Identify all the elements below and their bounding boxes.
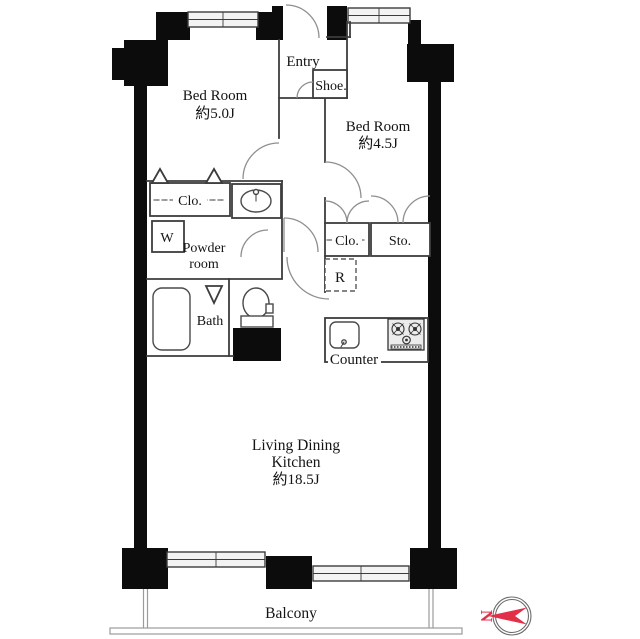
closet-right-door-arc <box>347 201 369 223</box>
door-arc-shoe <box>297 82 313 98</box>
entry-label: Entry <box>286 54 320 70</box>
door-arc-front-door <box>286 5 319 38</box>
powder-room: W Powder room <box>152 221 268 272</box>
wall-left <box>134 84 147 552</box>
wall-top-left-band <box>156 12 190 40</box>
closet-left-label: Clo. <box>178 194 202 209</box>
storage-door-arc <box>403 196 430 223</box>
bathtub-icon <box>153 288 190 350</box>
bedroom1-size: 約5.0J <box>195 105 235 122</box>
hall-doors <box>284 218 329 299</box>
closet-right-and-storage: Clo. Sto. <box>325 196 430 256</box>
bedroom1-label: Bed Room <box>183 88 248 104</box>
wash-basin <box>232 184 281 218</box>
bedroom2-label: Bed Room <box>346 119 411 135</box>
toilet-tank-icon <box>241 316 273 327</box>
pillar-bottom-right <box>410 548 457 589</box>
bath-folding-door-icon <box>206 286 222 303</box>
door-arc-bedroom2 <box>325 162 361 198</box>
folding-door-icon <box>152 169 168 183</box>
wall-entry-right <box>327 6 347 40</box>
pillar-bottom-left <box>122 548 168 589</box>
counter-label: Counter <box>330 352 378 368</box>
wall-right <box>428 80 441 552</box>
balcony-slab <box>110 628 462 634</box>
compass: N <box>477 597 531 635</box>
north-label: N <box>477 610 496 623</box>
balcony: Balcony <box>110 589 462 634</box>
floor-plan-page: Clo. W Powder room Bath Entry Shoe. <box>0 0 640 639</box>
wall-entry-left <box>272 6 283 40</box>
kitchen-counter: Counter <box>325 318 428 368</box>
closet-right-label: Clo. <box>335 234 359 249</box>
pillar-top-left <box>124 40 168 86</box>
pillar-top-right <box>407 44 454 82</box>
toilet-bowl-icon <box>243 288 269 318</box>
window-bedroom1 <box>188 12 258 27</box>
storage-door-arc <box>371 196 398 223</box>
bedroom2-size: 約4.5J <box>358 135 398 152</box>
floor-plan-drawing: Clo. W Powder room Bath Entry Shoe. <box>0 0 640 639</box>
bath-label: Bath <box>197 314 223 329</box>
sliding-door-balcony-right <box>313 566 409 581</box>
ldk-size: 約18.5J <box>272 471 319 488</box>
closet-right-door-arc <box>325 201 347 223</box>
stove-icon <box>388 319 424 350</box>
folding-door-icon <box>206 169 222 183</box>
window-bedroom2 <box>348 8 410 23</box>
bathroom: Bath <box>153 286 223 350</box>
toilet <box>241 288 273 327</box>
pillar-top-left-bump <box>112 48 125 80</box>
toilet-handle-icon <box>266 304 273 313</box>
sliding-door-balcony-left <box>167 552 265 567</box>
door-arc-powder <box>241 230 268 257</box>
shoe-cabinet-label: Shoe. <box>315 79 347 94</box>
storage-label: Sto. <box>389 234 411 249</box>
pillar-toilet <box>233 328 281 361</box>
balcony-label: Balcony <box>265 605 317 622</box>
washing-machine-label: W <box>160 231 174 246</box>
closet-left: Clo. <box>150 169 230 216</box>
refrigerator: R <box>325 259 356 291</box>
wall-top-right-stub <box>408 20 421 46</box>
door-arc-hall <box>284 218 318 252</box>
powder-room-label-line1: Powder <box>183 241 226 256</box>
powder-room-label-line2: room <box>189 257 219 272</box>
pillar-bottom-middle <box>266 556 312 589</box>
door-arc-kitchen-entry <box>287 257 329 299</box>
ldk-label-line1: Living Dining <box>252 437 341 454</box>
refrigerator-label: R <box>335 270 345 286</box>
ldk-label-line2: Kitchen <box>271 454 320 471</box>
door-arc-bedroom1 <box>243 143 279 179</box>
